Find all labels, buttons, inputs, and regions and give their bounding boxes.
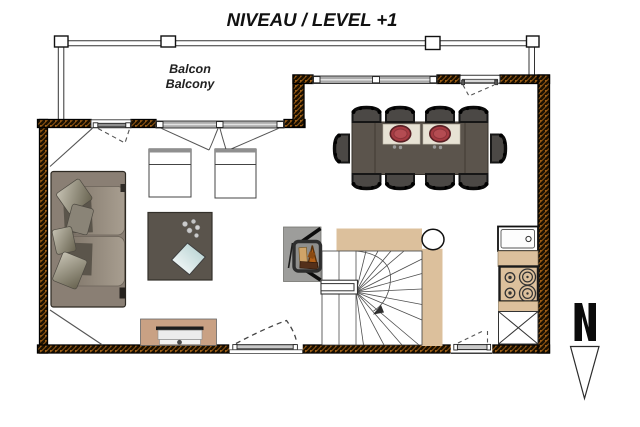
svg-text:Balcon: Balcon <box>169 62 211 76</box>
svg-text:NIVEAU / LEVEL +1: NIVEAU / LEVEL +1 <box>227 9 398 30</box>
svg-text:Balcony: Balcony <box>166 77 216 91</box>
